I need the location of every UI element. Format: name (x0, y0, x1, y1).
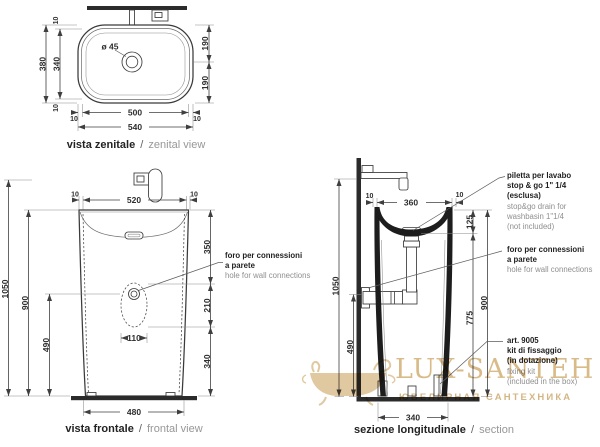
pedestal-wall-right (442, 207, 453, 397)
dim-490: 490 (345, 340, 355, 354)
hole-note-leader (368, 251, 502, 288)
dim-10-right: 10 (456, 192, 464, 199)
zenital-view: ø 45 380 340 10 10 190 190 (38, 6, 215, 132)
dim-340: 340 (406, 413, 420, 423)
dim-540: 540 (128, 122, 142, 132)
note-line: (in dotazione) (507, 356, 577, 366)
drain-flange (405, 236, 419, 241)
faucet-spout (361, 173, 407, 179)
note-line: washbasin 1"1/4 (507, 212, 571, 222)
dim-775: 775 (464, 311, 474, 325)
zenital-caption-it: vista zenitale (67, 139, 135, 151)
trap-horizontal-pipe (363, 292, 404, 305)
section-dim-bottom: 340 (378, 403, 448, 423)
faucet-outlet (399, 178, 408, 190)
caption-separator: / (138, 139, 145, 151)
note-line: stop&go drain for (507, 202, 571, 212)
dim-1050: 1050 (0, 279, 10, 298)
technical-drawing-page: ø 45 380 340 10 10 190 190 (0, 0, 600, 447)
note-line: a parete (225, 261, 310, 271)
section-dim-top: 360 10 10 (366, 192, 464, 208)
zenital-caption-en: zenital view (148, 139, 205, 151)
drain-pipe (407, 247, 417, 292)
caption-separator: / (469, 424, 476, 436)
dim-110: 110 (127, 333, 141, 343)
dim-360: 360 (404, 198, 418, 208)
zenital-dim-bottom: 500 10 10 540 (70, 104, 201, 132)
note-line: kit di fissaggio (507, 346, 577, 356)
caption-separator: / (137, 423, 144, 435)
floor-bar (357, 397, 480, 402)
dim-900: 900 (479, 296, 489, 310)
dim-10-top: 10 (53, 17, 60, 25)
bowl-section (375, 207, 453, 237)
note-line: art. 9005 (507, 336, 577, 346)
dim-10-right: 10 (190, 192, 198, 199)
section-view: 360 10 10 1050 490 125 775 900 (330, 158, 505, 423)
dim-210: 210 (202, 298, 212, 312)
section-caption: sezione longitudinale / section (330, 424, 538, 436)
drain-nut (404, 241, 420, 247)
floor-bar (71, 396, 197, 400)
note-line: (not included) (507, 222, 571, 232)
note-line: foro per connessioni (507, 245, 592, 255)
wall-bar (87, 6, 187, 10)
frontal-wall-hole-note: foro per connessioni a parete hole for w… (225, 251, 310, 282)
section-fixing-kit-note: art. 9005 kit di fissaggio (in dotazione… (507, 336, 577, 387)
faucet-handle-detail (137, 176, 144, 182)
dim-1050: 1050 (330, 276, 340, 295)
dim-500: 500 (128, 108, 142, 118)
drain-outer (122, 52, 142, 72)
dim-480: 480 (127, 407, 141, 417)
faucet-spout (149, 169, 163, 202)
dim-380: 380 (38, 57, 48, 71)
note-line: piletta per lavabo (507, 171, 571, 181)
dim-10-left: 10 (366, 193, 374, 200)
dim-190-bottom: 190 (200, 76, 210, 90)
section-wall-hole-note: foro per connessioni a parete hole for w… (507, 245, 592, 276)
dim-900: 900 (20, 296, 30, 310)
faucet-handle-inner (155, 13, 162, 18)
fixing-clip-center (408, 386, 416, 396)
zenital-dim-right: 190 190 (194, 25, 214, 103)
section-dim-right: 125 775 900 (421, 210, 492, 397)
frontal-caption-it: vista frontale (65, 423, 133, 435)
note-line: hole for wall connections (225, 271, 310, 281)
dim-520: 520 (127, 195, 141, 205)
frontal-dim-bottom: 480 (84, 401, 185, 418)
section-caption-it: sezione longitudinale (354, 424, 466, 436)
dim-490: 490 (41, 338, 51, 352)
note-line: (included in the box) (507, 377, 577, 387)
note-line: foro per connessioni (225, 251, 310, 261)
drain-diameter-label: ø 45 (101, 42, 118, 52)
dim-340: 340 (52, 57, 62, 71)
dim-190-top: 190 (200, 36, 210, 50)
dim-10-right: 10 (193, 116, 201, 123)
dim-125: 125 (464, 215, 474, 229)
dim-10-bottom: 10 (53, 104, 60, 112)
drain-note-leader (413, 177, 505, 231)
dim-10-left: 10 (70, 116, 78, 123)
note-line: (esclusa) (507, 191, 571, 201)
dim-350: 350 (202, 240, 212, 254)
section-drain-note: piletta per lavabo stop & go 1" 1/4 (esc… (507, 171, 571, 232)
overflow-slot (125, 232, 143, 239)
dim-10-left: 10 (71, 192, 79, 199)
wall-hole-outer (129, 289, 140, 300)
zenital-caption: vista zenitale / zenital view (36, 139, 236, 151)
note-line: a parete (507, 255, 592, 265)
frontal-caption: vista frontale / frontal view (34, 423, 234, 435)
faucet-handle (362, 166, 373, 173)
frontal-caption-en: frontal view (147, 423, 203, 435)
note-line: fixing kit (507, 367, 577, 377)
frontal-view: 520 10 10 1050 900 490 350 2 (0, 169, 223, 417)
frontal-dim-top: 520 10 10 (71, 192, 198, 210)
foot-right (166, 393, 175, 397)
zenital-dim-left: 380 340 10 10 (38, 17, 83, 112)
wall-bar (357, 158, 362, 402)
note-line: stop & go 1" 1/4 (507, 181, 571, 191)
note-line: hole for wall connections (507, 265, 592, 275)
dim-340: 340 (202, 354, 212, 368)
section-caption-en: section (479, 424, 514, 436)
foot-left (87, 393, 96, 397)
